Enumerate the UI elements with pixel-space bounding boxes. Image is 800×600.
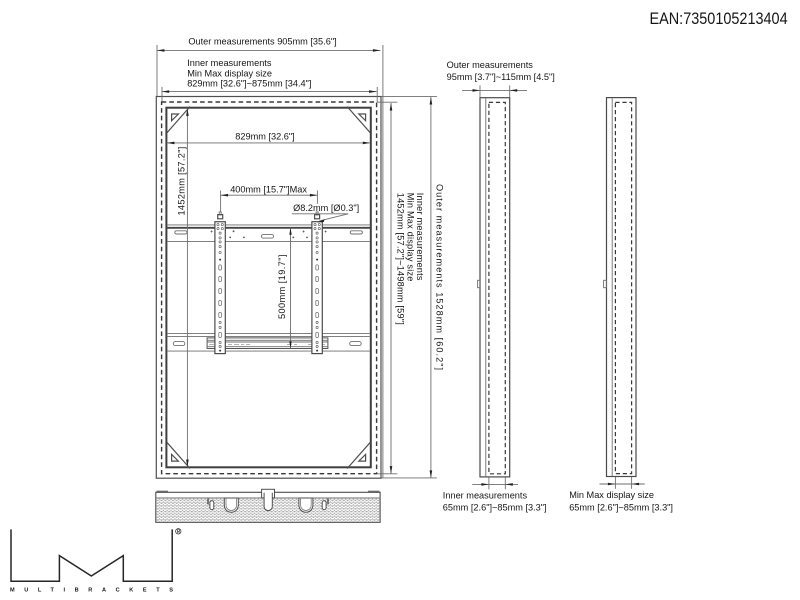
svg-text:500mm [19.7"]: 500mm [19.7"] — [277, 254, 287, 319]
svg-text:Outer measurements: Outer measurements — [447, 60, 534, 70]
svg-text:95mm [3.7"]~115mm [4.5"]: 95mm [3.7"]~115mm [4.5"] — [447, 72, 555, 82]
svg-text:1452mm [57.2"]~1498mm [59"]: 1452mm [57.2"]~1498mm [59"] — [396, 193, 406, 325]
svg-text:Min Max display size: Min Max display size — [405, 193, 415, 282]
svg-text:Inner measurements: Inner measurements — [187, 58, 272, 68]
svg-text:MULTIBRACKETS: MULTIBRACKETS — [10, 588, 183, 594]
svg-text:Inner measurements: Inner measurements — [443, 491, 528, 501]
svg-text:EAN:7350105213404: EAN:7350105213404 — [650, 10, 788, 28]
svg-text:829mm [32.6"]: 829mm [32.6"] — [235, 131, 294, 141]
svg-text:829mm [32.6"]~875mm [34.4"]: 829mm [32.6"]~875mm [34.4"] — [187, 79, 311, 89]
svg-text:Outer measurements 1528mm [60.: Outer measurements 1528mm [60.2"] — [435, 184, 445, 371]
svg-text:Ø8.2mm [Ø0.3"]: Ø8.2mm [Ø0.3"] — [293, 203, 359, 213]
svg-text:1452mm [57.2"]: 1452mm [57.2"] — [176, 146, 186, 215]
svg-text:Min Max display size: Min Max display size — [569, 490, 654, 500]
svg-text:Outer measurements 905mm [35.6: Outer measurements 905mm [35.6"] — [188, 36, 336, 46]
svg-text:400mm [15.7"]Max: 400mm [15.7"]Max — [230, 185, 307, 195]
svg-text:Inner measurements: Inner measurements — [415, 193, 425, 281]
svg-text:65mm [2.6"]~85mm [3.3"]: 65mm [2.6"]~85mm [3.3"] — [443, 502, 547, 512]
svg-text:65mm [2.6"]~85mm [3.3"]: 65mm [2.6"]~85mm [3.3"] — [569, 502, 673, 512]
svg-text:Min Max display size: Min Max display size — [187, 68, 272, 78]
